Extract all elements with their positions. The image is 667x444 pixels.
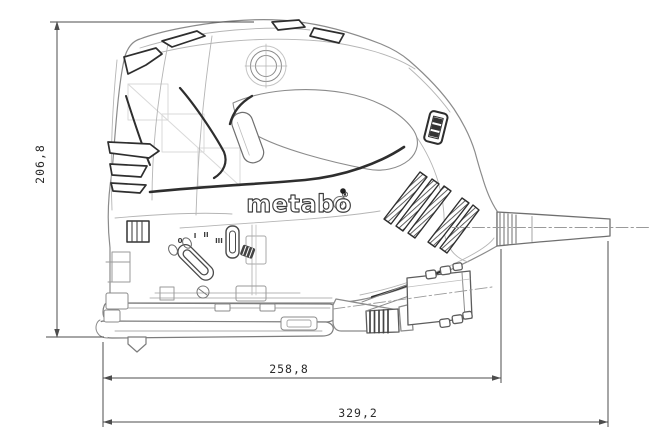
dimension-drawing-canvas: metabo ® 0 I II III — [0, 0, 667, 444]
arrow-left — [103, 375, 112, 380]
dial-mark-3: III — [215, 237, 223, 245]
metabo-logo: metabo ® — [246, 190, 352, 218]
logo-text: metabo — [246, 190, 352, 218]
arrow-left — [103, 419, 112, 424]
dial-mark-1: I — [194, 232, 197, 240]
arrow-right — [599, 419, 608, 424]
jigsaw-technical-drawing: metabo ® 0 I II III — [0, 0, 667, 444]
body-outline — [108, 20, 497, 303]
cord-grommet — [497, 212, 610, 246]
ribbed-sleeve — [366, 309, 399, 333]
body-length-label: 258,8 — [269, 362, 309, 376]
blade-clamp-slot — [226, 226, 239, 258]
saw-blade — [128, 337, 146, 352]
jigsaw-drawing: metabo ® 0 I II III — [96, 20, 650, 352]
arrow-right — [492, 375, 501, 380]
dial-mark-0: 0 — [178, 237, 183, 245]
dial-mark-2: II — [203, 231, 208, 239]
total-length-label: 329,2 — [338, 406, 378, 420]
registered-mark: ® — [341, 190, 349, 199]
height-label: 206,8 — [33, 144, 47, 184]
